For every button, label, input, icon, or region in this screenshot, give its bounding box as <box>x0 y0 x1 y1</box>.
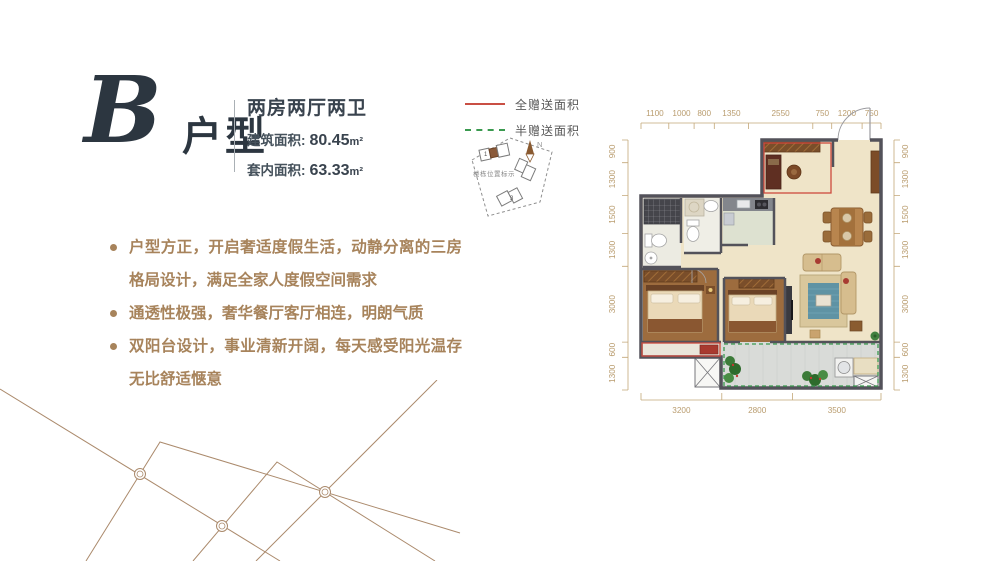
header-divider <box>234 100 235 172</box>
wardrobe <box>644 271 697 282</box>
layout-name: 两房两厅两卫 <box>247 93 367 120</box>
page: B 户型 两房两厅两卫 建筑面积:80.45m² 套内面积:63.33m² 户型… <box>0 0 1000 561</box>
balcony-cabinet <box>854 358 878 374</box>
dims-bottom: 3200 2800 3500 <box>672 406 846 415</box>
dim-label: 1300 <box>901 240 910 259</box>
stool <box>810 330 820 338</box>
compass-icon: N <box>526 140 542 162</box>
dim-label: 750 <box>815 109 829 118</box>
dim-label: 1300 <box>608 240 617 259</box>
dim-label: 800 <box>697 109 711 118</box>
inner-area-row: 套内面积:63.33m² <box>247 159 367 180</box>
coffee-table <box>816 295 831 306</box>
dim-label: 1200 <box>838 109 857 118</box>
legend-full-gift-label: 全赠送面积 <box>515 96 580 113</box>
dim-label: 1300 <box>901 170 910 189</box>
bed-headboard <box>728 290 777 295</box>
fridge <box>724 213 734 225</box>
dim-label: 3000 <box>608 295 617 314</box>
toilet <box>687 227 699 242</box>
feature-item: 户型方正，开启奢适度假生活，动静分离的三房格局设计，满足全家人度假空间需求 <box>108 231 462 297</box>
dim-label: 3000 <box>901 295 910 314</box>
built-area-unit: m² <box>350 136 363 148</box>
site-marker-label: 楼栋位置标示 <box>473 169 515 178</box>
dim-label: 750 <box>865 109 879 118</box>
bay-window-seat <box>700 345 718 354</box>
floor-plan: 1100 1000 800 1350 2550 750 1200 750 320… <box>588 95 933 427</box>
dim-label: 2800 <box>748 406 767 415</box>
site-location-marker: 1 3 楼栋位置标示 N <box>458 128 573 228</box>
sink <box>704 201 718 212</box>
inner-area-label: 套内面积: <box>247 163 306 178</box>
dim-label: 600 <box>608 342 617 356</box>
dim-label: 1100 <box>646 109 664 118</box>
side-table <box>850 321 862 331</box>
dim-label: 2550 <box>771 109 790 118</box>
decor-node-icon <box>135 469 331 532</box>
dim-label: 3200 <box>672 406 691 415</box>
dim-label: 1000 <box>672 109 691 118</box>
shoe-cabinet <box>871 151 880 193</box>
sofa-chaise <box>841 272 856 314</box>
feature-list: 户型方正，开启奢适度假生活，动静分离的三房格局设计，满足全家人度假空间需求 通透… <box>108 231 462 396</box>
solid-red-line-icon <box>465 103 505 105</box>
dim-label: 900 <box>901 144 910 158</box>
wardrobe <box>739 279 774 288</box>
dims-top: 1100 1000 800 1350 2550 750 1200 750 <box>646 109 879 118</box>
dim-label: 1300 <box>608 170 617 189</box>
built-area-row: 建筑面积:80.45m² <box>247 129 367 150</box>
dim-label: 1500 <box>608 205 617 224</box>
building-footprint-2 <box>513 158 537 180</box>
toilet <box>652 234 667 247</box>
kitchen-sink <box>737 200 750 208</box>
built-area-value: 80.45 <box>310 132 350 149</box>
feature-item: 通透性极强，奢华餐厅客厅相连，明朗气质 <box>108 297 462 330</box>
legend-full-gift: 全赠送面积 <box>465 95 580 113</box>
shower-area <box>685 199 704 216</box>
compass-north-label: N <box>537 140 542 149</box>
dim-label: 600 <box>901 342 910 356</box>
dim-label: 900 <box>608 144 617 158</box>
dims-left: 900 1300 1500 1300 3000 600 1300 <box>608 144 617 383</box>
dim-label: 3500 <box>828 406 847 415</box>
inner-area-unit: m² <box>350 166 363 178</box>
unit-type-letter: B <box>84 60 162 160</box>
tv-screen <box>791 300 793 320</box>
bed-headboard <box>646 285 704 291</box>
dim-label: 1300 <box>608 364 617 383</box>
shower-area <box>644 199 680 224</box>
dim-label: 1500 <box>901 205 910 224</box>
inner-area-value: 63.33 <box>310 162 350 179</box>
dim-label: 1300 <box>901 364 910 383</box>
decorative-lines <box>0 380 560 561</box>
built-area-label: 建筑面积: <box>247 133 306 148</box>
dim-label: 1350 <box>722 109 741 118</box>
header-info: 两房两厅两卫 建筑面积:80.45m² 套内面积:63.33m² <box>247 93 367 180</box>
dims-right: 900 1300 1500 1300 3000 600 1300 <box>901 144 910 383</box>
